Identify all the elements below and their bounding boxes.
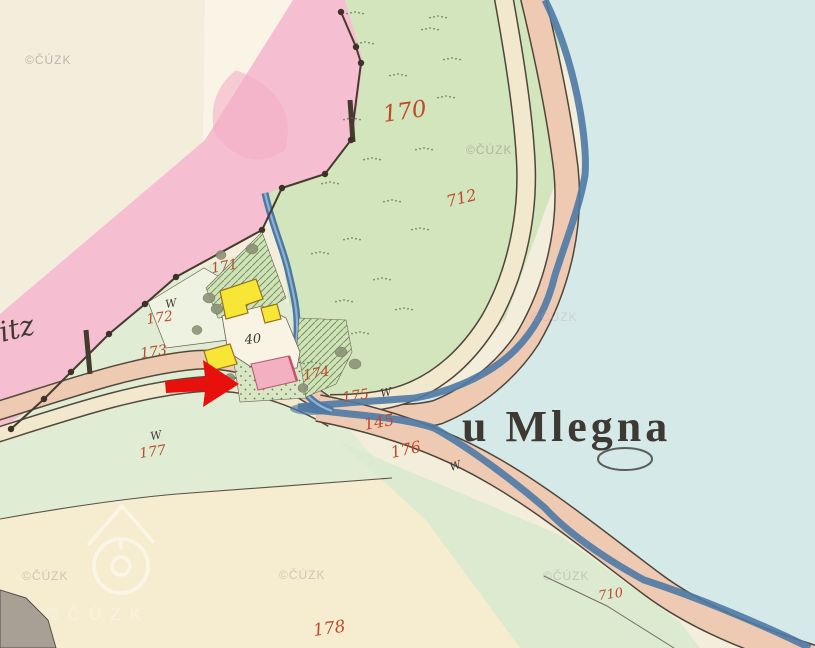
cadastral-map-canvas: 17071217117217317417514517617717871040it…	[0, 0, 815, 648]
cuzk-watermark: ©ČÚZK	[543, 568, 590, 583]
cuzk-watermark: ©ČÚZK	[279, 567, 326, 582]
place-label-u-mlegna: u Mlegna	[462, 402, 671, 451]
cuzk-watermark: ©ČÚZK	[531, 309, 578, 324]
ghost-watermark: ©ČÚZK	[46, 605, 150, 624]
cuzk-watermark: ©ČÚZK	[22, 568, 69, 583]
cuzk-watermark: ©ČÚZK	[466, 142, 513, 157]
map-drawing: 17071217117217317417514517617717871040it…	[0, 0, 815, 648]
house-number-40: 40	[243, 332, 262, 348]
cuzk-watermark: ©ČÚZK	[25, 52, 72, 67]
